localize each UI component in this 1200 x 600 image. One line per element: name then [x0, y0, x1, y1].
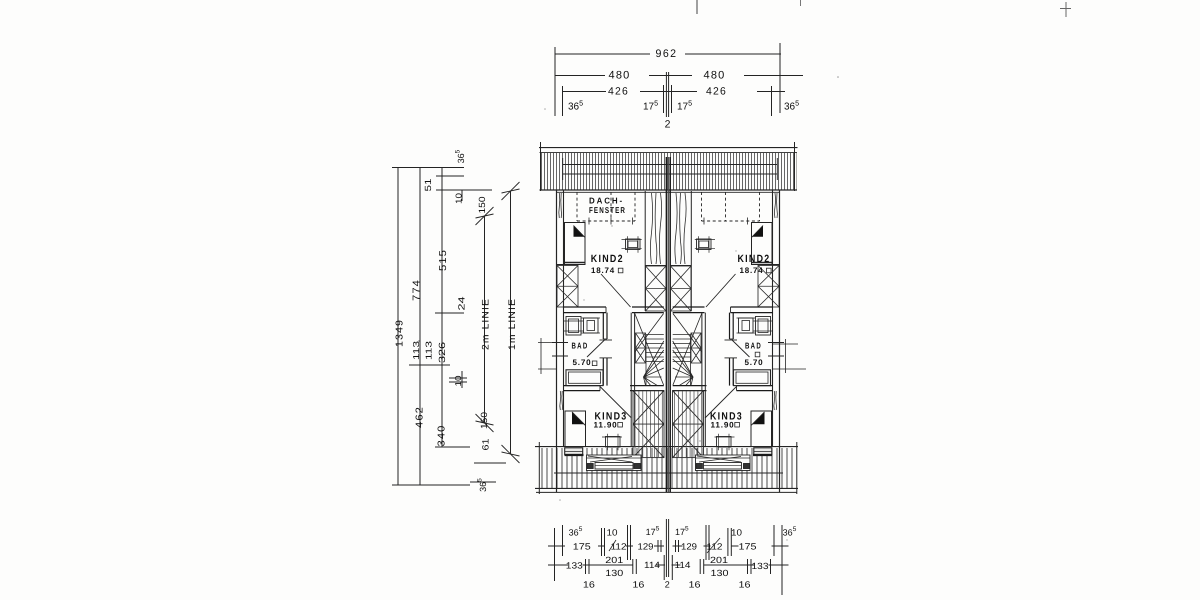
- svg-text:133: 133: [752, 561, 769, 571]
- svg-text:113: 113: [424, 341, 434, 360]
- svg-text:KIND2: KIND2: [591, 253, 624, 265]
- svg-text:150: 150: [477, 197, 487, 214]
- svg-text:175: 175: [739, 542, 757, 552]
- svg-text:11.90: 11.90: [594, 420, 618, 429]
- svg-text:2: 2: [665, 119, 671, 131]
- svg-text:2: 2: [665, 580, 670, 590]
- svg-text:774: 774: [412, 279, 423, 301]
- svg-text:112: 112: [611, 542, 627, 552]
- svg-text:1m LINIE: 1m LINIE: [507, 298, 518, 350]
- svg-text:11.90: 11.90: [711, 420, 735, 429]
- svg-text:5.70: 5.70: [573, 358, 592, 367]
- svg-text:201: 201: [710, 555, 728, 565]
- svg-text:130: 130: [605, 568, 623, 578]
- svg-text:175: 175: [573, 542, 591, 552]
- svg-text:10: 10: [453, 375, 463, 386]
- svg-text:BAD: BAD: [572, 341, 589, 351]
- svg-text:16: 16: [632, 580, 644, 590]
- svg-text:133: 133: [566, 561, 583, 571]
- svg-text:129: 129: [638, 542, 654, 552]
- svg-text:113: 113: [411, 341, 421, 360]
- svg-text:326: 326: [437, 342, 447, 363]
- svg-text:112: 112: [707, 542, 723, 552]
- svg-text:201: 201: [605, 555, 623, 565]
- svg-text:16: 16: [739, 580, 751, 590]
- svg-text:114: 114: [644, 560, 660, 570]
- svg-text:1349: 1349: [395, 319, 406, 347]
- svg-text:2m LINIE: 2m LINIE: [481, 298, 492, 350]
- svg-text:10: 10: [607, 528, 618, 538]
- svg-text:61: 61: [481, 439, 491, 451]
- svg-text:18.74: 18.74: [740, 266, 764, 275]
- svg-text:480: 480: [609, 70, 631, 82]
- svg-text:114: 114: [675, 560, 691, 570]
- svg-text:129: 129: [681, 542, 697, 552]
- svg-text:962: 962: [656, 48, 678, 60]
- svg-text:51: 51: [423, 179, 433, 192]
- svg-text:18.74: 18.74: [591, 266, 615, 275]
- svg-text:16: 16: [689, 580, 701, 590]
- svg-text:480: 480: [704, 70, 726, 82]
- svg-text:10: 10: [454, 193, 464, 204]
- svg-text:KIND2: KIND2: [738, 253, 771, 265]
- svg-text:FENSTER: FENSTER: [589, 205, 626, 215]
- svg-text:130: 130: [711, 568, 729, 578]
- svg-text:515: 515: [438, 249, 449, 271]
- svg-text:5.70: 5.70: [745, 358, 764, 367]
- svg-text:426: 426: [706, 86, 727, 98]
- svg-text:DACH-: DACH-: [589, 196, 624, 206]
- svg-text:426: 426: [608, 86, 629, 98]
- svg-text:BAD: BAD: [745, 341, 762, 351]
- svg-text:24: 24: [457, 297, 467, 311]
- svg-text:10: 10: [731, 528, 742, 538]
- svg-text:462: 462: [415, 406, 426, 428]
- svg-text:16: 16: [583, 580, 595, 590]
- svg-text:340: 340: [437, 425, 448, 447]
